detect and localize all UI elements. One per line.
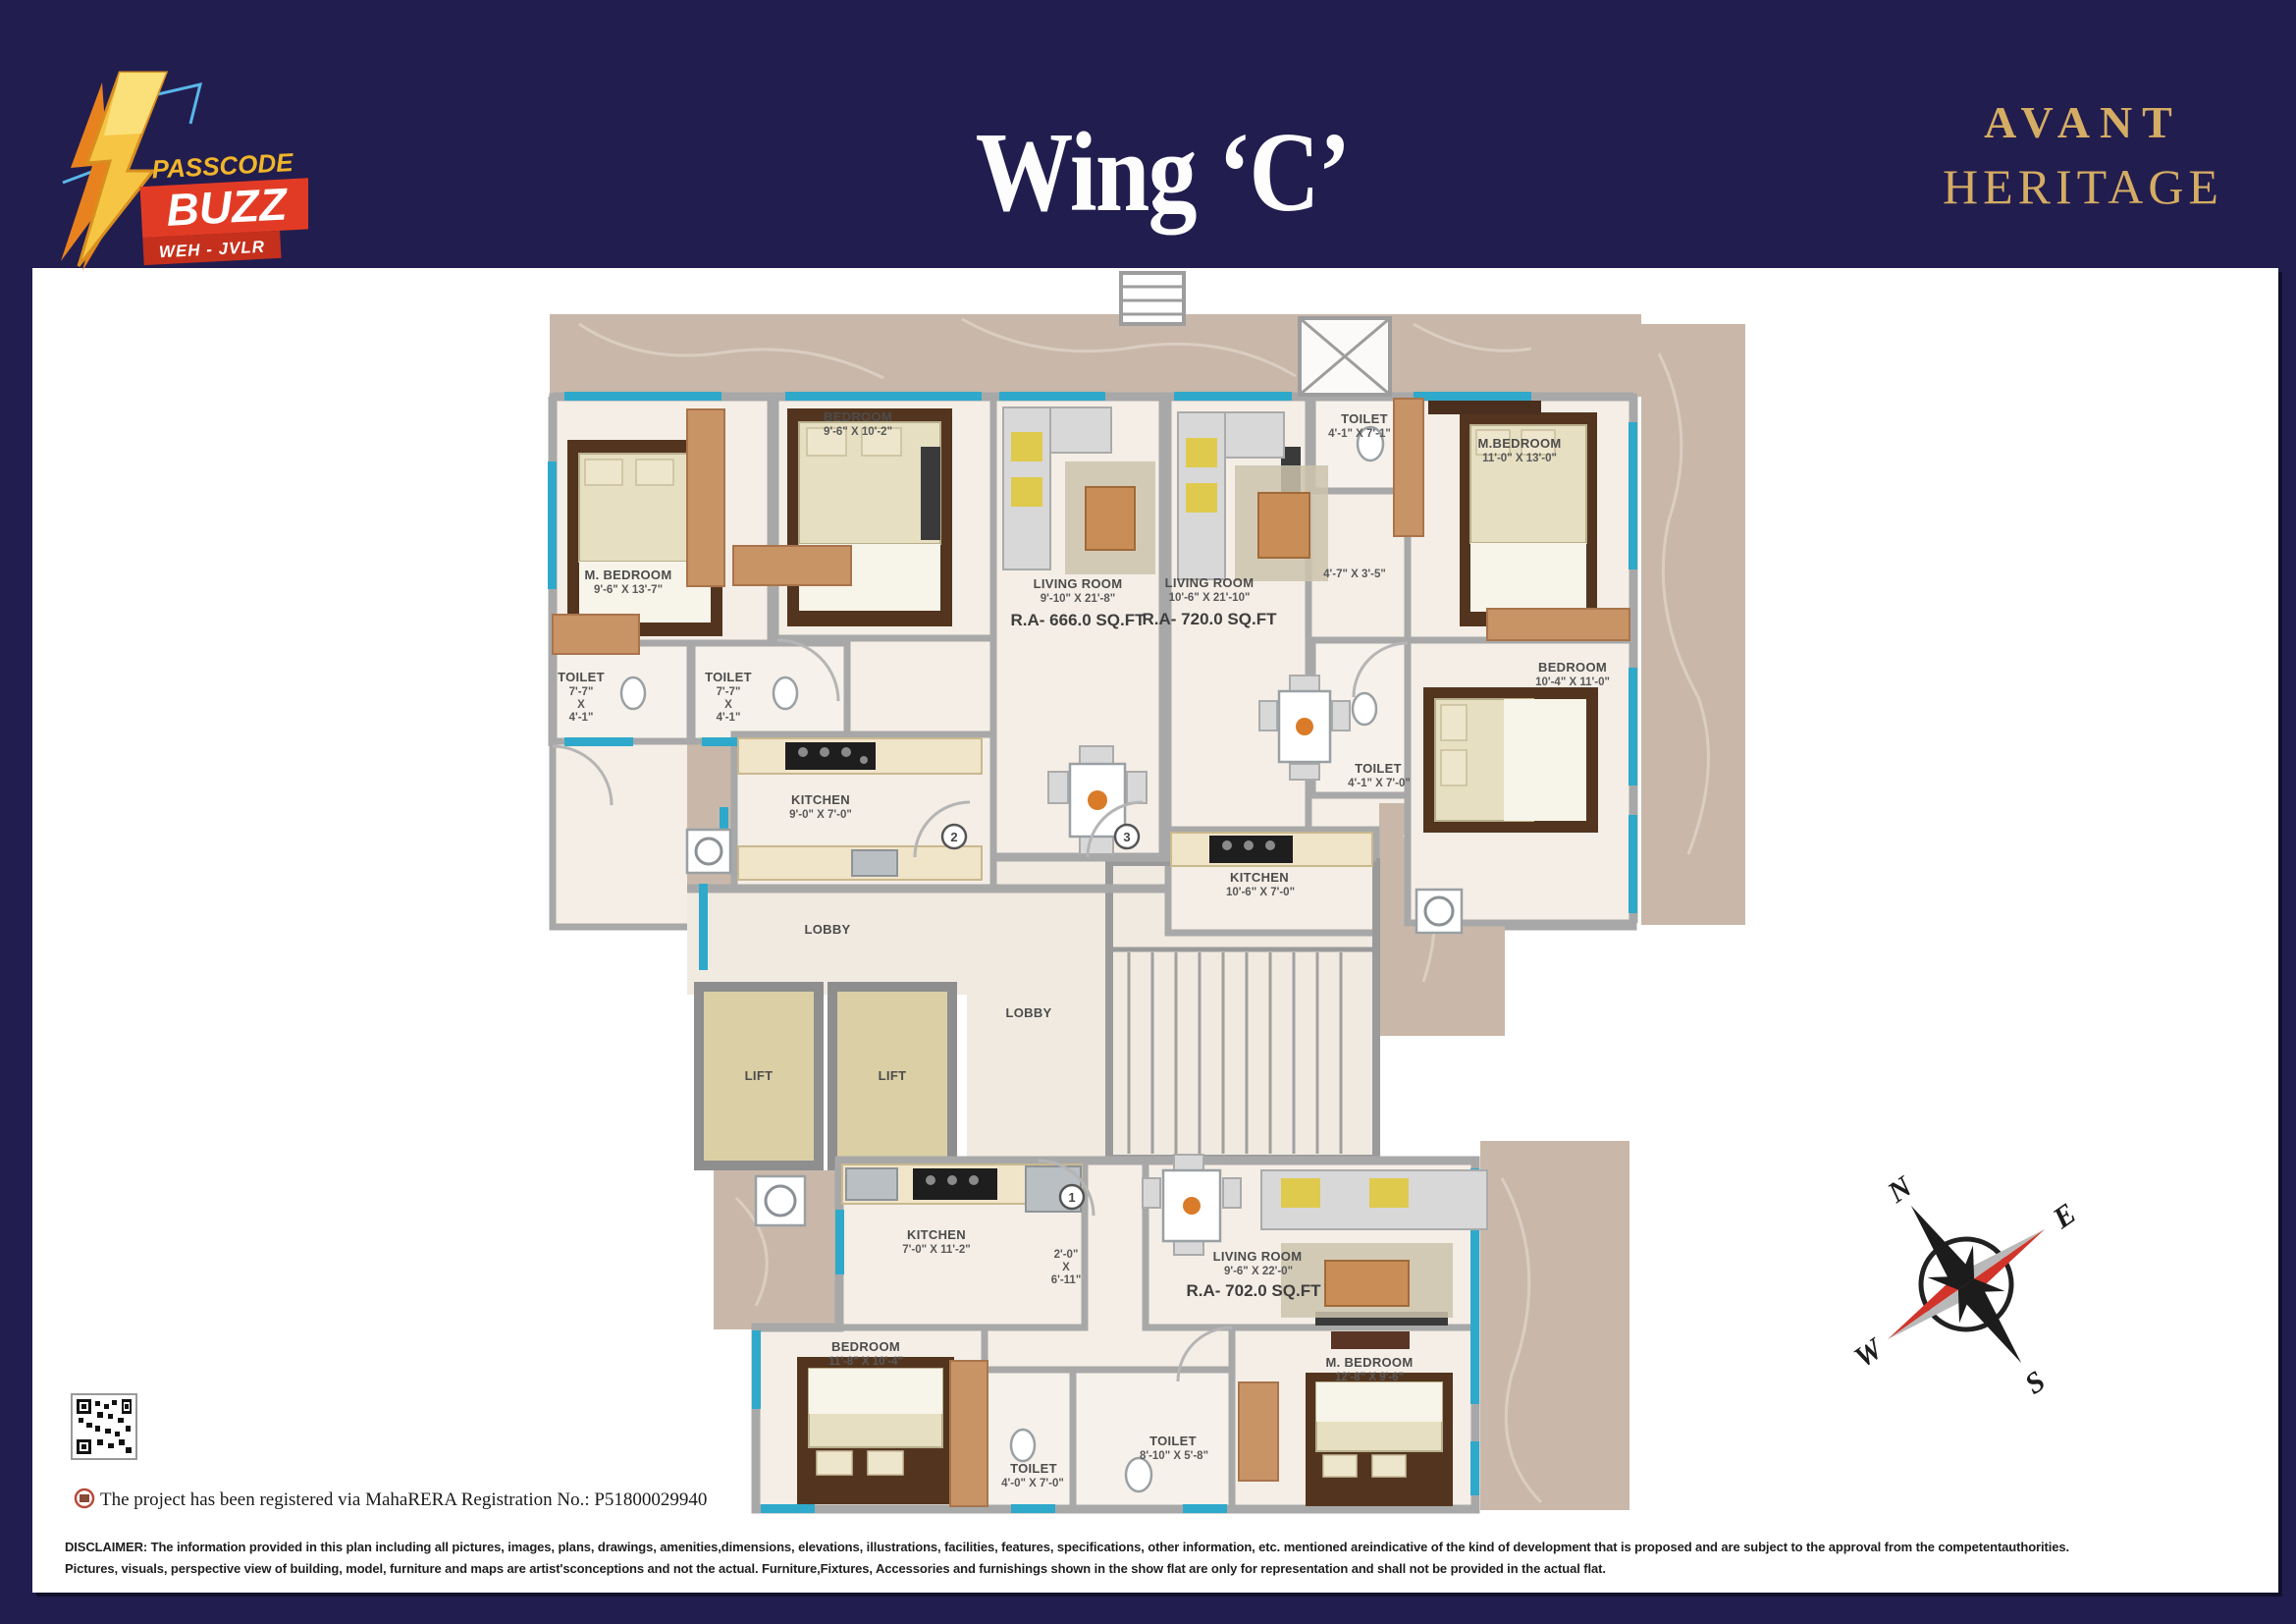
dim-toilet-a1-w: 7'-7" xyxy=(569,686,594,698)
label-living-a: LIVING ROOM xyxy=(1034,576,1123,591)
bed-m-bedroom-c xyxy=(1306,1373,1453,1506)
dim-toilet-a2-w: 7'-7" xyxy=(717,686,741,698)
disclaimer-line-1: DISCLAIMER: The information provided in … xyxy=(65,1540,2069,1554)
dim-living-c: 9'-6" X 22'-0" xyxy=(1224,1266,1293,1277)
compass-s: S xyxy=(2019,1365,2052,1401)
dim-toilet-a2-h: 4'-1" xyxy=(717,712,741,724)
door-marker-3: 3 xyxy=(1123,830,1130,844)
label-living-c: LIVING ROOM xyxy=(1213,1249,1303,1264)
label-toilet-c2: TOILET xyxy=(1149,1434,1197,1448)
label-toilet-a2: TOILET xyxy=(705,670,752,684)
compass-e: E xyxy=(2047,1197,2082,1235)
rera-registration: The project has been registered via Maha… xyxy=(76,1489,707,1510)
rera-text: The project has been registered via Maha… xyxy=(100,1489,707,1510)
label-m-bedroom-b: M.BEDROOM xyxy=(1477,436,1561,451)
label-m-bedroom-a: M. BEDROOM xyxy=(585,568,672,582)
label-bedroom-b: BEDROOM xyxy=(1538,660,1607,675)
disclaimer: DISCLAIMER: The information provided in … xyxy=(65,1540,2069,1576)
qr-code xyxy=(72,1394,136,1459)
label-bedroom-c: BEDROOM xyxy=(831,1339,900,1354)
disclaimer-line-2: Pictures, visuals, perspective view of b… xyxy=(65,1561,1606,1576)
tv-console xyxy=(1331,1331,1410,1349)
wardrobe xyxy=(733,546,851,585)
bed-bedroom-b xyxy=(1423,687,1598,833)
wardrobe xyxy=(687,409,724,586)
label-kitchen-c: KITCHEN xyxy=(907,1227,966,1242)
label-bedroom-a: BEDROOM xyxy=(824,409,892,424)
wardrobe xyxy=(950,1361,988,1506)
dim-bedroom-c: 11'-8" X 10'-4" xyxy=(828,1356,903,1368)
label-toilet-b1: TOILET xyxy=(1341,411,1388,426)
washing-machine-icon xyxy=(756,1176,805,1225)
door-marker-1: 1 xyxy=(1068,1190,1075,1205)
dim-passage-c-w: 2'-0" xyxy=(1054,1249,1079,1261)
washing-machine-icon xyxy=(687,830,730,873)
dim-kitchen-b: 10'-6" X 7'-0" xyxy=(1226,887,1295,898)
label-lobby-a: LOBBY xyxy=(805,922,851,937)
label-toilet-a1: TOILET xyxy=(558,670,605,684)
dim-passage-c-x: X xyxy=(1062,1262,1070,1273)
label-lift-1: LIFT xyxy=(745,1068,774,1083)
label-kitchen-a: KITCHEN xyxy=(791,792,850,807)
dim-m-bedroom-c: 12'-8" X 9'-6" xyxy=(1335,1372,1404,1383)
dim-living-a: 9'-10" X 21'-8" xyxy=(1041,593,1115,605)
dim-passage-b: 4'-7" X 3'-5" xyxy=(1323,568,1386,580)
dim-toilet-a1-h: 4'-1" xyxy=(569,712,594,724)
dim-toilet-a2-x: X xyxy=(724,699,732,711)
compass-w: W xyxy=(1848,1331,1891,1375)
wardrobe xyxy=(1394,399,1423,536)
marble-right-wing xyxy=(1641,324,1745,925)
dim-toilet-b2: 4'-1" X 7'-0" xyxy=(1348,778,1411,789)
label-living-b: LIVING ROOM xyxy=(1165,575,1255,590)
dim-bedroom-b: 10'-4" X 11'-0" xyxy=(1535,677,1610,688)
label-lift-2: LIFT xyxy=(879,1068,907,1083)
floorplan-svg: M. BEDROOM 9'-6" X 13'-7" BEDROOM 9'-6" … xyxy=(0,0,2296,1624)
page: PASSCODE BUZZ WEH - JVLR Wing ‘C’ AVANT … xyxy=(0,0,2296,1624)
label-toilet-b2: TOILET xyxy=(1355,761,1402,776)
dim-m-bedroom-b: 11'-0" X 13'-0" xyxy=(1482,453,1557,464)
compass-rose-icon: N E S W xyxy=(1782,1103,2151,1473)
door-marker-2: 2 xyxy=(950,830,957,844)
dim-kitchen-c: 7'-0" X 11'-2" xyxy=(902,1244,970,1256)
label-m-bedroom-c: M. BEDROOM xyxy=(1326,1355,1414,1370)
duct-shaft-icon xyxy=(1121,273,1184,324)
area-living-b: R.A- 720.0 SQ.FT xyxy=(1143,610,1278,628)
dim-toilet-a1-x: X xyxy=(577,699,585,711)
dim-bedroom-a: 9'-6" X 10'-2" xyxy=(824,426,892,438)
marble-top-band xyxy=(550,314,1641,397)
tv-unit xyxy=(921,447,940,540)
area-living-c: R.A- 702.0 SQ.FT xyxy=(1187,1281,1322,1300)
dim-kitchen-a: 9'-0" X 7'-0" xyxy=(789,809,852,821)
label-kitchen-b: KITCHEN xyxy=(1230,870,1289,885)
window-sill xyxy=(1428,401,1541,414)
bed-bedroom-c xyxy=(797,1357,954,1504)
dim-passage-c-h: 6'-11" xyxy=(1051,1274,1082,1286)
kitchen-c-counter xyxy=(842,1164,1082,1212)
dim-toilet-c1: 4'-0" X 7'-0" xyxy=(1001,1478,1064,1489)
label-lobby-b: LOBBY xyxy=(1006,1005,1052,1020)
dim-living-b: 10'-6" X 21'-10" xyxy=(1169,592,1251,604)
wardrobe xyxy=(1239,1382,1278,1481)
wardrobe xyxy=(1487,609,1629,640)
label-toilet-c1: TOILET xyxy=(1010,1461,1057,1476)
dim-toilet-b1: 4'-1" X 7'-1" xyxy=(1328,428,1391,440)
area-living-a: R.A- 666.0 SQ.FT xyxy=(1011,611,1147,629)
washing-machine-icon xyxy=(1416,890,1462,933)
kitchen-b-counter xyxy=(1171,833,1372,866)
marble-bottom-right xyxy=(1480,1141,1629,1510)
compass-n: N xyxy=(1881,1169,1919,1210)
wardrobe xyxy=(553,615,639,654)
dim-m-bedroom-a: 9'-6" X 13'-7" xyxy=(594,584,663,596)
rera-icon-glyph xyxy=(80,1494,89,1502)
dim-toilet-c2: 8'-10" X 5'-8" xyxy=(1140,1450,1208,1462)
